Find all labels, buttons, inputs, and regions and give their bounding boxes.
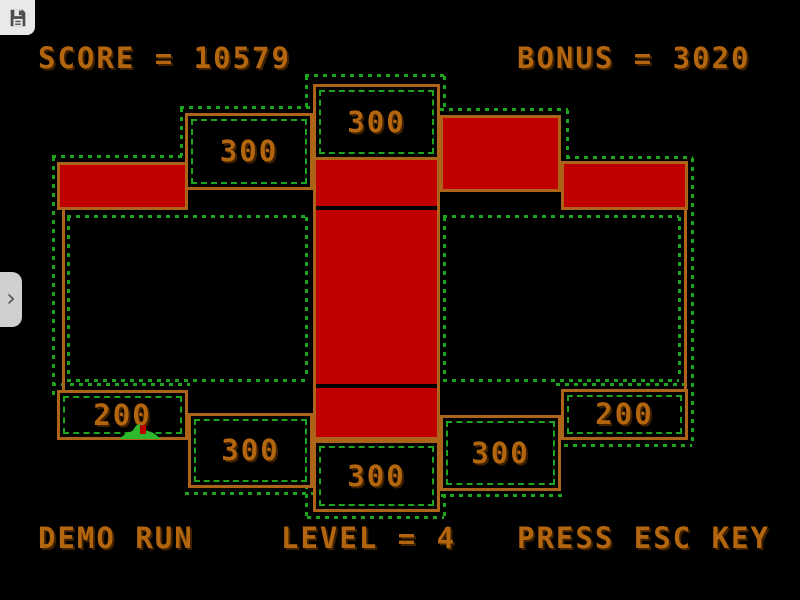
captured-block-center-column <box>313 160 440 440</box>
trail-dots <box>52 383 190 386</box>
bonus-display: BONUS = 3020 <box>517 44 751 73</box>
level-display: LEVEL = 4 <box>281 524 456 553</box>
score-cell-bottom-mid-right: 300 <box>440 415 561 491</box>
wall-segment-right <box>684 208 687 390</box>
trail-dots <box>443 217 446 379</box>
cell-value: 300 <box>347 108 405 137</box>
score-cell-bottom-center: 300 <box>313 440 440 512</box>
score-cell-upper-left: 300 <box>185 113 313 190</box>
cell-value: 300 <box>347 462 405 491</box>
score-cell-top-center: 300 <box>313 84 440 160</box>
cell-value: 300 <box>471 439 529 468</box>
trail-dots <box>443 76 446 110</box>
score-cell-bottom-right: 200 <box>561 389 688 440</box>
trail-dots <box>52 155 185 158</box>
trail-dots <box>443 379 679 382</box>
cell-value: 200 <box>595 400 653 429</box>
wall-segment-left <box>62 208 65 392</box>
game-screen[interactable]: SCORE = 10579 BONUS = 3020 DEMO RUN LEVE… <box>0 0 800 600</box>
trail-dots <box>564 444 692 447</box>
save-button[interactable] <box>0 0 35 35</box>
trail-dots <box>691 158 694 443</box>
player-creature <box>119 423 161 439</box>
trail-dots <box>307 516 444 519</box>
esc-hint-label: PRESS ESC KEY <box>517 524 770 553</box>
trail-dots <box>305 217 308 379</box>
trail-dots <box>678 217 681 379</box>
trail-dots <box>566 156 693 159</box>
trail-dots <box>566 110 569 158</box>
drawer-toggle-button[interactable]: › <box>0 272 22 327</box>
demo-run-label: DEMO RUN <box>38 524 194 553</box>
trail-dots <box>180 106 313 109</box>
score-cell-bottom-mid-left: 300 <box>188 413 313 488</box>
score-display: SCORE = 10579 <box>38 44 291 73</box>
trail-dots <box>67 379 307 382</box>
trail-dots <box>67 217 70 379</box>
chevron-right-icon: › <box>6 286 16 310</box>
trail-dots <box>443 215 679 218</box>
trail-dots <box>52 157 55 395</box>
trail-dots <box>180 108 183 156</box>
trail-dots <box>441 494 563 497</box>
trail-dots <box>185 492 313 495</box>
trail-dots <box>556 383 692 386</box>
trail-dots <box>67 215 307 218</box>
trail-dots <box>305 74 446 77</box>
captured-block-left-bar <box>57 162 188 210</box>
trail-dots <box>431 108 568 111</box>
creature-red-dot <box>140 425 146 434</box>
trail-dots <box>305 76 308 108</box>
floppy-disk-icon <box>7 7 29 29</box>
cell-value: 300 <box>220 137 278 166</box>
cell-value: 300 <box>221 436 279 465</box>
column-divider <box>316 384 437 388</box>
captured-block-upper-right <box>440 115 561 192</box>
column-divider <box>316 206 437 210</box>
captured-block-right-bar <box>561 161 688 210</box>
